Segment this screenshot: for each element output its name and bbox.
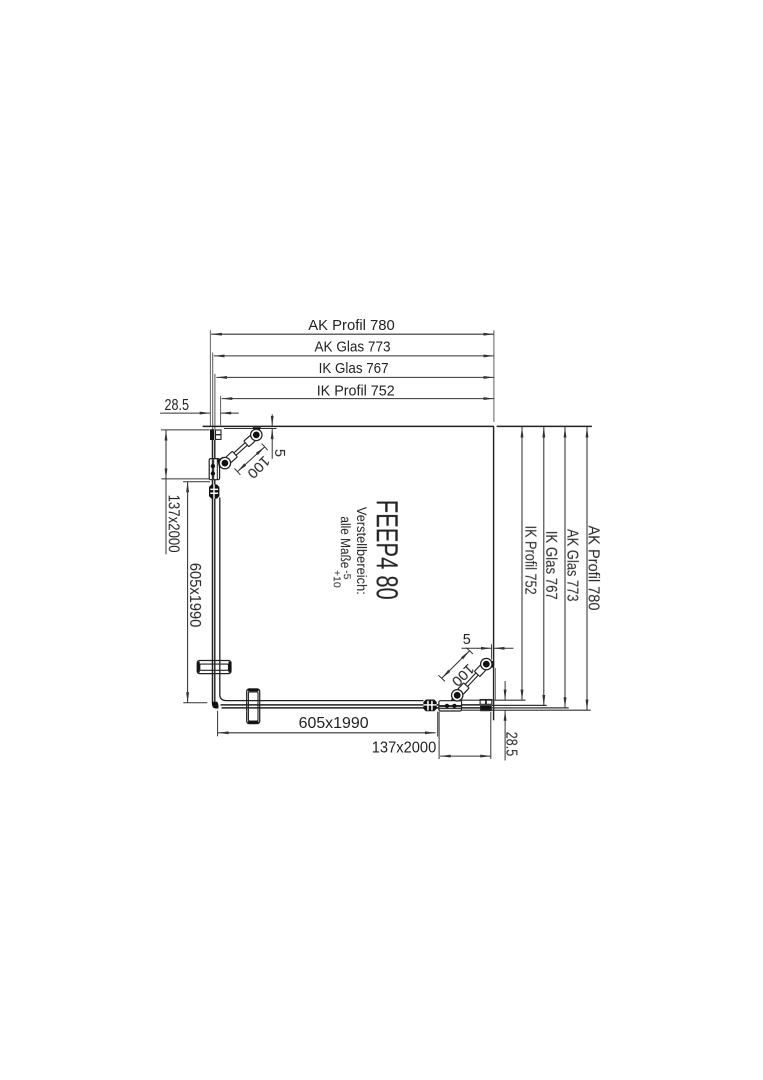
svg-text:alle Maße: alle Maße — [337, 516, 353, 568]
svg-text:137x2000: 137x2000 — [165, 495, 182, 553]
svg-text:5: 5 — [271, 449, 287, 457]
svg-text:AK Profil 780: AK Profil 780 — [308, 317, 395, 334]
svg-text:AK Glas 773: AK Glas 773 — [564, 529, 581, 602]
svg-text:IK Glas 767: IK Glas 767 — [319, 360, 389, 377]
svg-text:5: 5 — [463, 632, 471, 648]
svg-text:28.5: 28.5 — [502, 732, 519, 757]
svg-text:28.5: 28.5 — [164, 397, 189, 414]
svg-text:IK Glas 767: IK Glas 767 — [542, 531, 559, 600]
svg-text:+10: +10 — [331, 570, 343, 588]
svg-text:FEEP4 80: FEEP4 80 — [370, 500, 405, 600]
svg-text:AK Profil 780: AK Profil 780 — [585, 526, 602, 611]
svg-text:137x2000: 137x2000 — [372, 739, 437, 756]
svg-text:AK Glas 773: AK Glas 773 — [315, 338, 391, 355]
svg-text:Verstellbereich:: Verstellbereich: — [353, 507, 369, 595]
svg-text:605x1990: 605x1990 — [186, 563, 203, 628]
svg-text:IK Profil 752: IK Profil 752 — [521, 526, 538, 595]
svg-text:IK Profil 752: IK Profil 752 — [317, 382, 395, 399]
svg-text:605x1990: 605x1990 — [299, 715, 369, 732]
